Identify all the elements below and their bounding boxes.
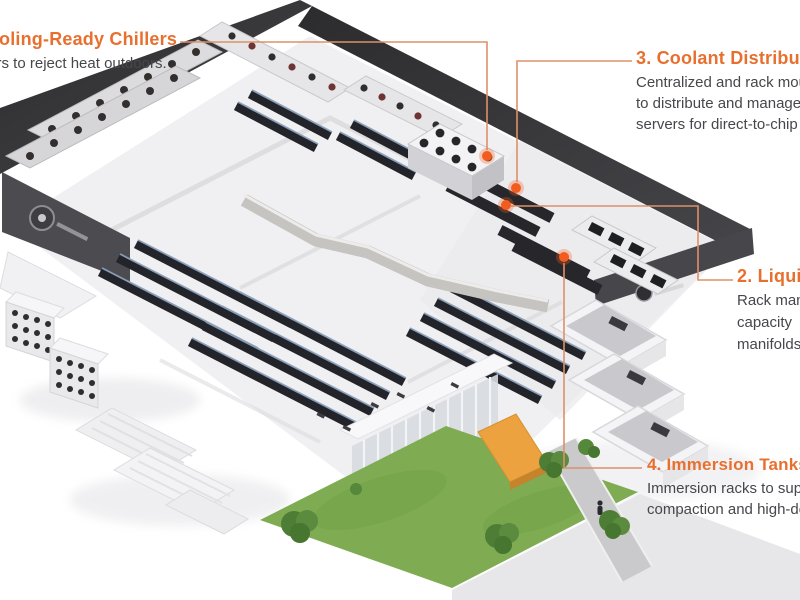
callout-dot-2	[501, 200, 511, 210]
callout-chillers-body: Chillers to reject heat outdoors.	[0, 53, 167, 74]
callout-dot-4	[559, 252, 569, 262]
callout-dot-3	[511, 183, 521, 193]
callout-chillers-title: 1. Cooling-Ready Chillers	[0, 29, 177, 50]
callout-immersion-tanks: 4. Immersion Tanks Immersion racks to su…	[647, 455, 800, 520]
callout-liquid-title: 2. Liquid	[737, 266, 800, 287]
datacenter-infographic: 1. Cooling-Ready Chillers Chillers to re…	[0, 0, 800, 600]
callout-dot-1	[482, 151, 492, 161]
callout-liquid: 2. Liquid Rack man capacity manifolds	[737, 266, 800, 356]
callout-coolant-distribution: 3. Coolant Distribution Centralized and …	[636, 48, 800, 135]
callout-chillers: 1. Cooling-Ready Chillers	[0, 29, 177, 53]
person	[597, 500, 602, 515]
callout-immersion-title: 4. Immersion Tanks	[647, 455, 800, 475]
callout-coolant-title: 3. Coolant Distribution	[636, 48, 800, 69]
